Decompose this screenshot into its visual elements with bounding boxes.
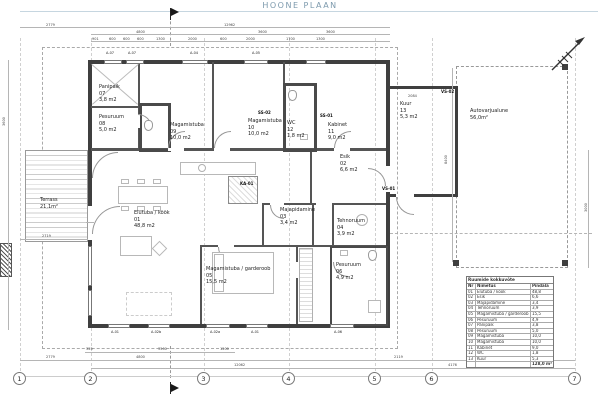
- dimension-label: 2119: [394, 355, 403, 359]
- carport-post: [562, 260, 568, 266]
- grid-bubble-number: 2: [88, 375, 92, 383]
- dimension-text: 2779: [46, 355, 55, 359]
- room-area: 48,8 m2: [134, 223, 170, 230]
- table-total-row: 128,0 m²: [467, 362, 553, 367]
- chair: [137, 179, 145, 184]
- room-name: Magamistuba: [248, 118, 282, 125]
- cell-nr: 07: [467, 323, 476, 328]
- cell-area: 5,0: [531, 329, 553, 334]
- room-area: 5,0 m2: [99, 127, 124, 134]
- window-tag: A-05: [252, 51, 260, 55]
- grid-bubble: 5: [368, 372, 381, 385]
- room-name: Panipaik: [99, 84, 120, 91]
- grid-bubble: 1: [13, 372, 26, 385]
- room-label: Magamistuba 10 10,0 m2: [248, 118, 282, 138]
- grid-bubble-number: 4: [286, 375, 290, 383]
- chair: [121, 179, 129, 184]
- room-area: 9,0 m2: [328, 135, 347, 142]
- room-label: Kabinet 11 9,0 m2: [328, 122, 347, 142]
- window-tag-text: A-07: [128, 51, 136, 55]
- dimension-label: 2000: [246, 37, 255, 41]
- wardrobe: [299, 248, 313, 322]
- window: [246, 324, 268, 328]
- wall-type-tag: KA-01: [240, 181, 253, 186]
- dimension-text: 3500: [158, 347, 167, 351]
- wall: [88, 60, 92, 328]
- window: [306, 60, 326, 64]
- dimension-text: 2000: [246, 37, 255, 41]
- wall: [455, 86, 458, 197]
- cell-area: 3,8: [531, 323, 553, 328]
- cell-nr: 02: [467, 295, 476, 300]
- window-tag-text: A-01: [251, 330, 259, 334]
- door-swing: [396, 197, 414, 215]
- grid-bubble-number: 7: [572, 375, 576, 383]
- cell-area: 3,9: [531, 306, 553, 311]
- dimension-line: [91, 34, 390, 35]
- chair: [153, 179, 161, 184]
- wall: [212, 62, 214, 150]
- room-area: 3,9 m2: [337, 231, 365, 238]
- window: [126, 60, 144, 64]
- cell-area: 3,4: [531, 301, 553, 306]
- cell-name: Esik: [476, 295, 531, 300]
- cell-area: 10,0: [531, 340, 553, 345]
- room-label: Terrass 21,1m²: [40, 197, 58, 210]
- dimension-label: 1200: [220, 347, 229, 351]
- room-summary-table: Ruumide kokkuvõte Nr Nimetus Pindala 01 …: [466, 276, 554, 368]
- table-title: Ruumide kokkuvõte: [467, 277, 553, 284]
- dimension-text: 600: [220, 37, 227, 41]
- room-label: Elutuba / köök 01 48,8 m2: [134, 210, 170, 230]
- kitchen-counter: [180, 162, 256, 175]
- window-tag-text: A-02a: [210, 330, 220, 334]
- dimension-text: 2779: [46, 23, 55, 27]
- door-opening: [214, 148, 230, 151]
- grid-bubble: 4: [282, 372, 295, 385]
- table-body: 01 Elutuba / köök 48,8 02 Esik 6,6 03 Ma…: [467, 290, 553, 363]
- dimension-text: 2719: [42, 234, 51, 238]
- cell-name: Magamistuba / garderoob: [476, 312, 531, 317]
- dimension-label: 600: [109, 37, 116, 41]
- room-name: Pesuruum: [99, 114, 124, 121]
- room-label: Kuur 13 5,3 m2: [400, 101, 418, 121]
- cell-area: 10,0: [531, 334, 553, 339]
- north-arrow-icon: [544, 28, 592, 76]
- wall-type-tag: SS-02: [258, 110, 271, 115]
- wall: [200, 245, 202, 324]
- door-opening: [168, 148, 184, 151]
- room-name: Elutuba / köök: [134, 210, 170, 217]
- cell-nr: 11: [467, 346, 476, 351]
- window: [330, 324, 354, 328]
- table-header-area: Pindala: [531, 284, 553, 289]
- room-area: 1,8 m2: [287, 133, 305, 140]
- window: [206, 324, 230, 328]
- title-rule: [20, 11, 598, 12]
- room-area: 15,5 m2: [206, 279, 270, 286]
- dimension-text: 325: [86, 347, 93, 351]
- room-name: Kabinet: [328, 122, 347, 129]
- dimension-line: [20, 27, 390, 28]
- dimension-line: [8, 60, 9, 330]
- cell-name: Magamistuba: [476, 340, 531, 345]
- wall-type-tag-text: SS-02: [258, 110, 271, 115]
- terrace-door-opening: [88, 206, 92, 240]
- window-tag-text: A-02b: [151, 330, 161, 334]
- dimension-text: 1300: [156, 37, 165, 41]
- chair: [121, 206, 129, 211]
- grid-bubble-number: 3: [201, 375, 205, 383]
- room-name: Pesuruum: [336, 262, 361, 269]
- cell-area: 48,8: [531, 290, 553, 295]
- dimension-label: 2779: [46, 23, 55, 27]
- table-header-nr: Nr: [467, 284, 476, 289]
- total-empty-nr: [467, 362, 476, 367]
- dimension-text: 3600: [258, 30, 267, 34]
- room-area: 56,0m²: [470, 115, 508, 122]
- dimension-text: 3000: [584, 203, 588, 212]
- bathroom-walls: [330, 246, 388, 326]
- wall-type-tag-text: SS-01: [320, 113, 333, 118]
- room-label: Autovarjualune 56,0m²: [470, 108, 508, 121]
- section-line-bottom: [170, 346, 171, 378]
- room-area: 21,1m²: [40, 204, 58, 211]
- floor-plan-sheet: HOONE PLAAN: [0, 0, 600, 400]
- window: [104, 60, 122, 64]
- dimension-text: 4176: [448, 363, 457, 367]
- room-area: 10,0 m2: [170, 135, 204, 142]
- cell-nr: 03: [467, 301, 476, 306]
- room-area: 4,9 m2: [336, 275, 361, 282]
- kitchen-sink: [198, 164, 206, 172]
- total-area: 128,0 m²: [531, 362, 553, 367]
- room-area: 6,6 m2: [340, 167, 358, 174]
- window-tag: A-06: [334, 330, 342, 334]
- dimension-label: 3600: [258, 30, 267, 34]
- sink: [340, 250, 348, 256]
- room-name: Tehnoruum: [337, 218, 365, 225]
- dimension-text: 3600: [2, 117, 6, 126]
- wall: [262, 203, 264, 246]
- cell-nr: 10: [467, 340, 476, 345]
- section-marker-flag: [171, 8, 179, 16]
- wall: [296, 245, 298, 324]
- cell-name: Pesuruum: [476, 318, 531, 323]
- window-tag-text: A-05: [252, 51, 260, 55]
- window-tag-text: A-04: [190, 51, 198, 55]
- cell-area: 5,3: [531, 357, 553, 362]
- dimension-text: 600: [109, 37, 116, 41]
- room-label: Pesuruum 08 5,0 m2: [99, 114, 124, 134]
- dimension-text: 2119: [394, 355, 403, 359]
- dimension-label: 2000: [188, 37, 197, 41]
- dimension-label: 600: [220, 37, 227, 41]
- page-title: HOONE PLAAN: [0, 1, 600, 10]
- section-marker-flag: [171, 384, 179, 392]
- window: [148, 324, 170, 328]
- dimension-label: 3600: [2, 117, 6, 126]
- sofa: [120, 236, 152, 256]
- room-label: Pesuruum 06 4,9 m2: [336, 262, 361, 282]
- cell-name: Kuur: [476, 357, 531, 362]
- dimension-label: 901: [92, 37, 99, 41]
- table-header-name: Nimetus: [476, 284, 531, 289]
- window: [88, 290, 92, 316]
- wall-type-tag: VS-01: [382, 186, 395, 191]
- cell-name: Pesuruum: [476, 329, 531, 334]
- window-tag: A-02a: [210, 330, 220, 334]
- dimension-text: 2000: [188, 37, 197, 41]
- total-empty-name: [476, 362, 531, 367]
- room-label: Tehnoruum 04 3,9 m2: [337, 218, 365, 238]
- window-tag: A-04: [190, 51, 198, 55]
- rug: [126, 292, 172, 316]
- grid-datum-line: [20, 376, 575, 377]
- dimension-line: [452, 68, 453, 262]
- slider-line: [86, 222, 94, 223]
- door-opening: [334, 148, 350, 151]
- room-area: 3,4 m2: [280, 220, 315, 227]
- dimension-text: 4800: [136, 30, 145, 34]
- window: [108, 324, 130, 328]
- window-tag-text: A-06: [334, 330, 342, 334]
- window-tag: A-01: [111, 330, 119, 334]
- grid-bubble-number: 1: [17, 375, 21, 383]
- dimension-text: 2084: [408, 94, 417, 98]
- cell-nr: 04: [467, 306, 476, 311]
- cell-nr: 05: [467, 312, 476, 317]
- cell-name: Magamistuba: [476, 334, 531, 339]
- cell-area: 1,8: [531, 351, 553, 356]
- grid-bubble-number: 6: [429, 375, 433, 383]
- cell-nr: 06: [467, 318, 476, 323]
- room-area: 3,8 m2: [99, 97, 120, 104]
- cell-name: Tehnoruum: [476, 306, 531, 311]
- washing-machine: [368, 300, 381, 313]
- cell-nr: 08: [467, 329, 476, 334]
- dimension-line: [20, 239, 88, 240]
- cell-nr: 01: [467, 290, 476, 295]
- dimension-label: 3600: [326, 30, 335, 34]
- dimension-label: 2779: [46, 355, 55, 359]
- window-tag: A-07: [128, 51, 136, 55]
- cell-nr: 09: [467, 334, 476, 339]
- grid-line-1: [20, 38, 21, 376]
- room-label: Majapidamine 03 3,4 m2: [280, 207, 315, 227]
- dining-table: [118, 186, 168, 204]
- dimension-label: 2719: [42, 234, 51, 238]
- room-label: Panipaik 07 3,8 m2: [99, 84, 120, 104]
- room-label: Magamistuba 09 10,0 m2: [170, 122, 204, 142]
- cell-nr: 12: [467, 351, 476, 356]
- window-tag: A-01: [251, 330, 259, 334]
- cell-name: Elutuba / köök: [476, 290, 531, 295]
- toilet: [368, 250, 377, 261]
- wall: [310, 151, 312, 204]
- dimension-text: 1200: [220, 347, 229, 351]
- door-opening: [316, 203, 332, 205]
- carport-outline: [456, 66, 568, 268]
- cell-area: 6,6: [531, 295, 553, 300]
- dimension-label: 600: [123, 37, 130, 41]
- dimension-line: [91, 368, 575, 369]
- window: [182, 60, 208, 64]
- dimension-label: 8400: [444, 155, 448, 164]
- dimension-line: [588, 150, 589, 268]
- wall-type-tag: VS-02: [441, 89, 454, 94]
- room-label: Esik 02 6,6 m2: [340, 154, 358, 174]
- terrace-deck: [25, 150, 88, 242]
- dimension-label: 1300: [156, 37, 165, 41]
- dimension-text: 600: [123, 37, 130, 41]
- dimension-label: 1300: [316, 37, 325, 41]
- room-label: Magamistuba / garderoob 05 15,5 m2: [206, 266, 270, 286]
- cell-name: Majapidamine: [476, 301, 531, 306]
- room-area: 10,0 m2: [248, 131, 282, 138]
- dimension-label: 1700: [286, 37, 295, 41]
- room-name: Magamistuba: [170, 122, 204, 129]
- window: [244, 60, 268, 64]
- dimension-label: 3500: [158, 347, 167, 351]
- dimension-label: 12962: [224, 23, 235, 27]
- dimension-text: 4800: [136, 355, 145, 359]
- dimension-label: 3000: [584, 203, 588, 212]
- dimension-label: 4176: [448, 363, 457, 367]
- dimension-text: 3600: [326, 30, 335, 34]
- wall: [332, 205, 334, 246]
- window-tag-text: A-07: [106, 51, 114, 55]
- dimension-text: 600: [137, 37, 144, 41]
- dimension-text: 1300: [316, 37, 325, 41]
- wall-type-tag: SS-01: [320, 113, 333, 118]
- dimension-line: [85, 352, 235, 353]
- dimension-text: 901: [92, 37, 99, 41]
- grid-line-7: [575, 38, 576, 376]
- dimension-label: 12062: [234, 363, 245, 367]
- dimension-label: 4800: [136, 355, 145, 359]
- room-name: Terrass: [40, 197, 58, 204]
- dimension-label: 2084: [408, 94, 417, 98]
- cell-name: WC: [476, 351, 531, 356]
- dimension-text: 12962: [224, 23, 235, 27]
- dimension-label: 4800: [136, 30, 145, 34]
- window: [88, 246, 92, 286]
- window-tag: A-02b: [151, 330, 161, 334]
- dimension-text: 1700: [286, 37, 295, 41]
- cell-nr: 13: [467, 357, 476, 362]
- site-wall-hatch: [0, 243, 12, 277]
- door-opening: [296, 262, 298, 278]
- grid-bubble-number: 5: [372, 375, 376, 383]
- grid-bubble: 6: [425, 372, 438, 385]
- cell-area: 15,5: [531, 312, 553, 317]
- room-area: 5,3 m2: [400, 114, 418, 121]
- room-label: WC 12 1,8 m2: [287, 120, 305, 140]
- cell-area: 9,0: [531, 346, 553, 351]
- cell-name: Kabinet: [476, 346, 531, 351]
- wall-type-tag-text: VS-01: [382, 186, 395, 191]
- cell-name: Panipaik: [476, 323, 531, 328]
- wall: [91, 106, 138, 108]
- room-name: Majapidamine: [280, 207, 315, 214]
- room-name: Autovarjualune: [470, 108, 508, 115]
- window-tag-text: A-01: [111, 330, 119, 334]
- dimension-text: 12062: [234, 363, 245, 367]
- dimension-label: 325: [86, 347, 93, 351]
- window-tag: A-07: [106, 51, 114, 55]
- room-name: Magamistuba / garderoob: [206, 266, 270, 273]
- wall-type-tag-text: VS-02: [441, 89, 454, 94]
- grid-bubble: 3: [197, 372, 210, 385]
- dimension-line: [91, 41, 390, 42]
- carport-post: [453, 260, 459, 266]
- toilet: [144, 120, 153, 131]
- grid-bubble: 7: [568, 372, 581, 385]
- dimension-label: 600: [137, 37, 144, 41]
- cell-area: 4,9: [531, 318, 553, 323]
- dimension-text: 8400: [444, 155, 448, 164]
- grid-bubble: 2: [84, 372, 97, 385]
- wall-type-tag-text: KA-01: [240, 181, 253, 186]
- toilet: [288, 90, 297, 101]
